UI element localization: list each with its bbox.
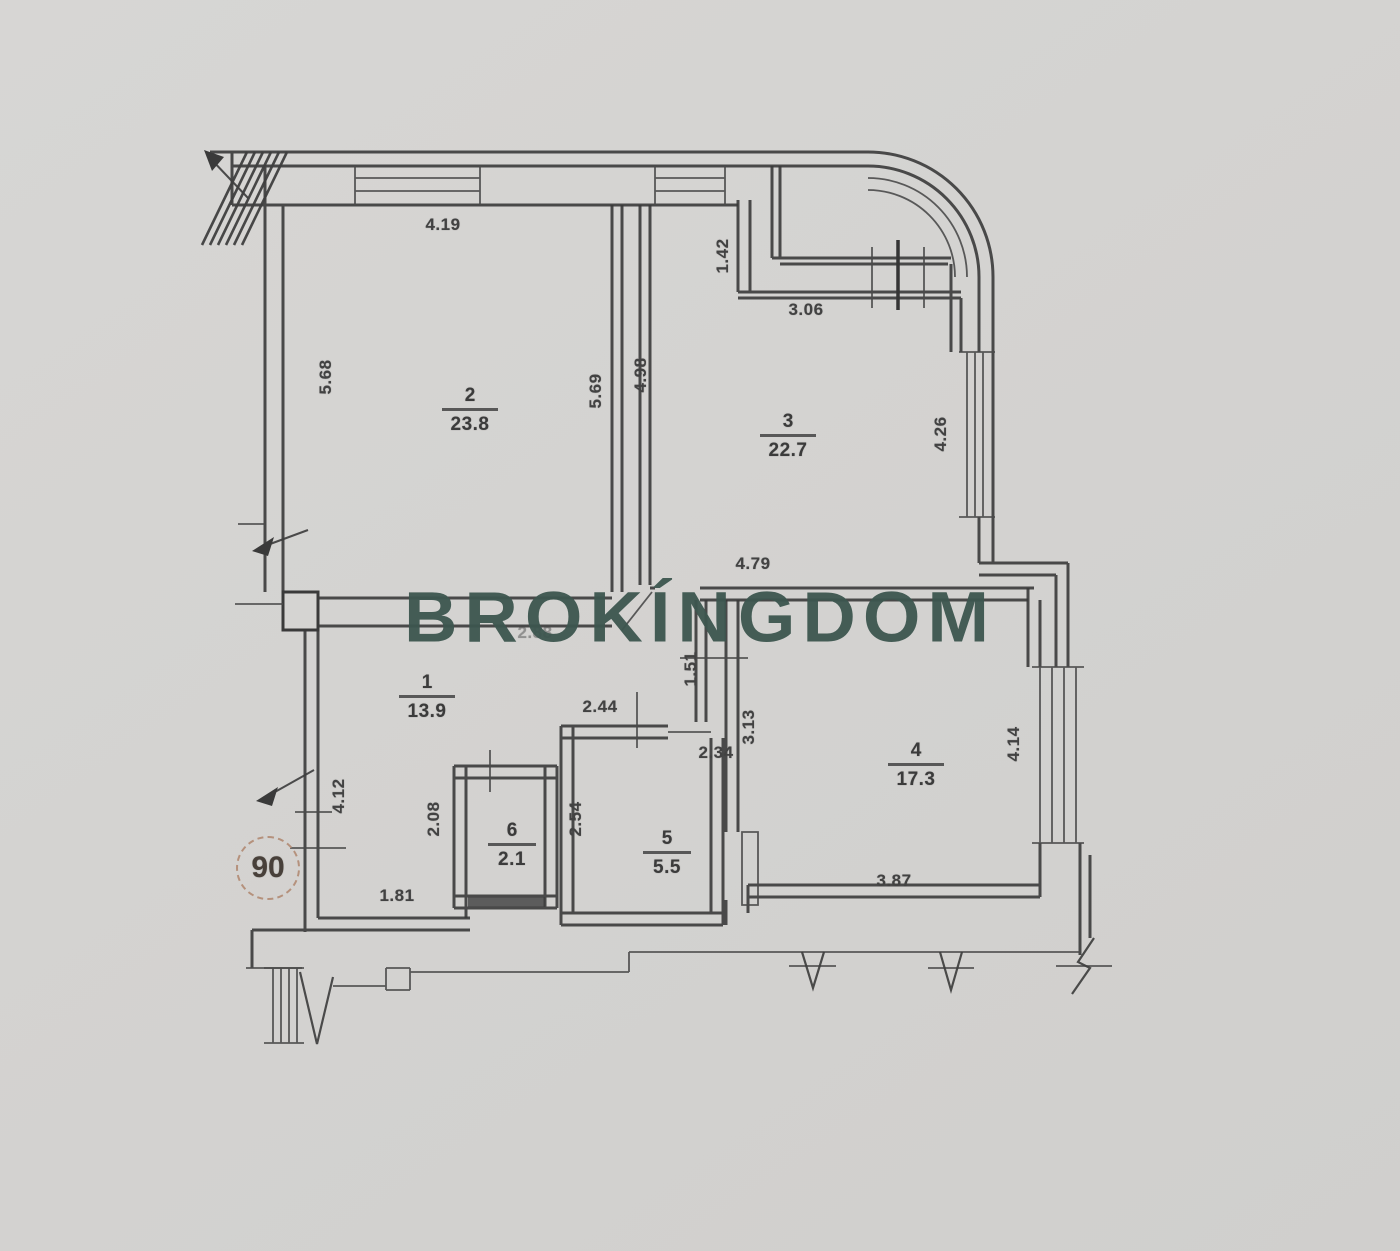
room-6-divider: [488, 843, 536, 846]
dimension-niche-width: 3.06: [788, 300, 823, 320]
watermark-text: BROKÍNGDOM: [404, 576, 996, 658]
dimension-room5-left: 2.54: [566, 801, 586, 836]
dimension-top-width: 4.19: [425, 215, 460, 235]
room-1-area: 13.9: [399, 702, 455, 721]
dimension-left-upper: 5.68: [316, 359, 336, 394]
room-3-label: 3 22.7: [760, 412, 816, 460]
dimension-room4-bottom: 3.87: [876, 871, 911, 891]
dimension-room5-door: 2.34: [698, 743, 733, 763]
room-4-area: 17.3: [888, 770, 944, 789]
dimension-room4-left: 3.13: [739, 709, 759, 744]
room-5-number: 5: [643, 829, 691, 848]
dimension-room3-bottom: 4.79: [735, 554, 770, 574]
dimension-room2-right: 5.69: [586, 373, 606, 408]
dimension-room5-top: 2.44: [582, 697, 617, 717]
room-4-number: 4: [888, 741, 944, 760]
room-3-divider: [760, 434, 816, 437]
room-2-label: 2 23.8: [442, 386, 498, 434]
wall-column: [283, 592, 318, 630]
room-4-divider: [888, 763, 944, 766]
room-3-area: 22.7: [760, 441, 816, 460]
room-6-label: 6 2.1: [488, 821, 536, 869]
dimension-corridor-left: 4.12: [329, 778, 349, 813]
dimension-room4-right: 4.14: [1004, 726, 1024, 761]
dimension-room3-left: 4.98: [631, 357, 651, 392]
floor-plan-scan: 4.19 5.68 5.69 4.98 1.42 3.06 4.26 4.79 …: [0, 0, 1400, 1251]
room-3-number: 3: [760, 412, 816, 431]
room-5-area: 5.5: [643, 858, 691, 877]
room-1-number: 1: [399, 673, 455, 692]
room-6-number: 6: [488, 821, 536, 840]
direction-arrows: [204, 150, 278, 806]
room-2-number: 2: [442, 386, 498, 405]
room-5-divider: [643, 851, 691, 854]
dimension-niche-height: 1.42: [713, 238, 733, 273]
dimension-room6-left: 2.08: [424, 801, 444, 836]
room-6-area: 2.1: [488, 850, 536, 869]
room-1-label: 1 13.9: [399, 673, 455, 721]
rotation-badge: 90: [236, 836, 300, 900]
room-4-label: 4 17.3: [888, 741, 944, 789]
dimension-room3-right: 4.26: [931, 416, 951, 451]
room-1-divider: [399, 695, 455, 698]
room-5-label: 5 5.5: [643, 829, 691, 877]
room-2-divider: [442, 408, 498, 411]
dimension-corridor-bottom: 1.81: [379, 886, 414, 906]
room-2-area: 23.8: [442, 415, 498, 434]
